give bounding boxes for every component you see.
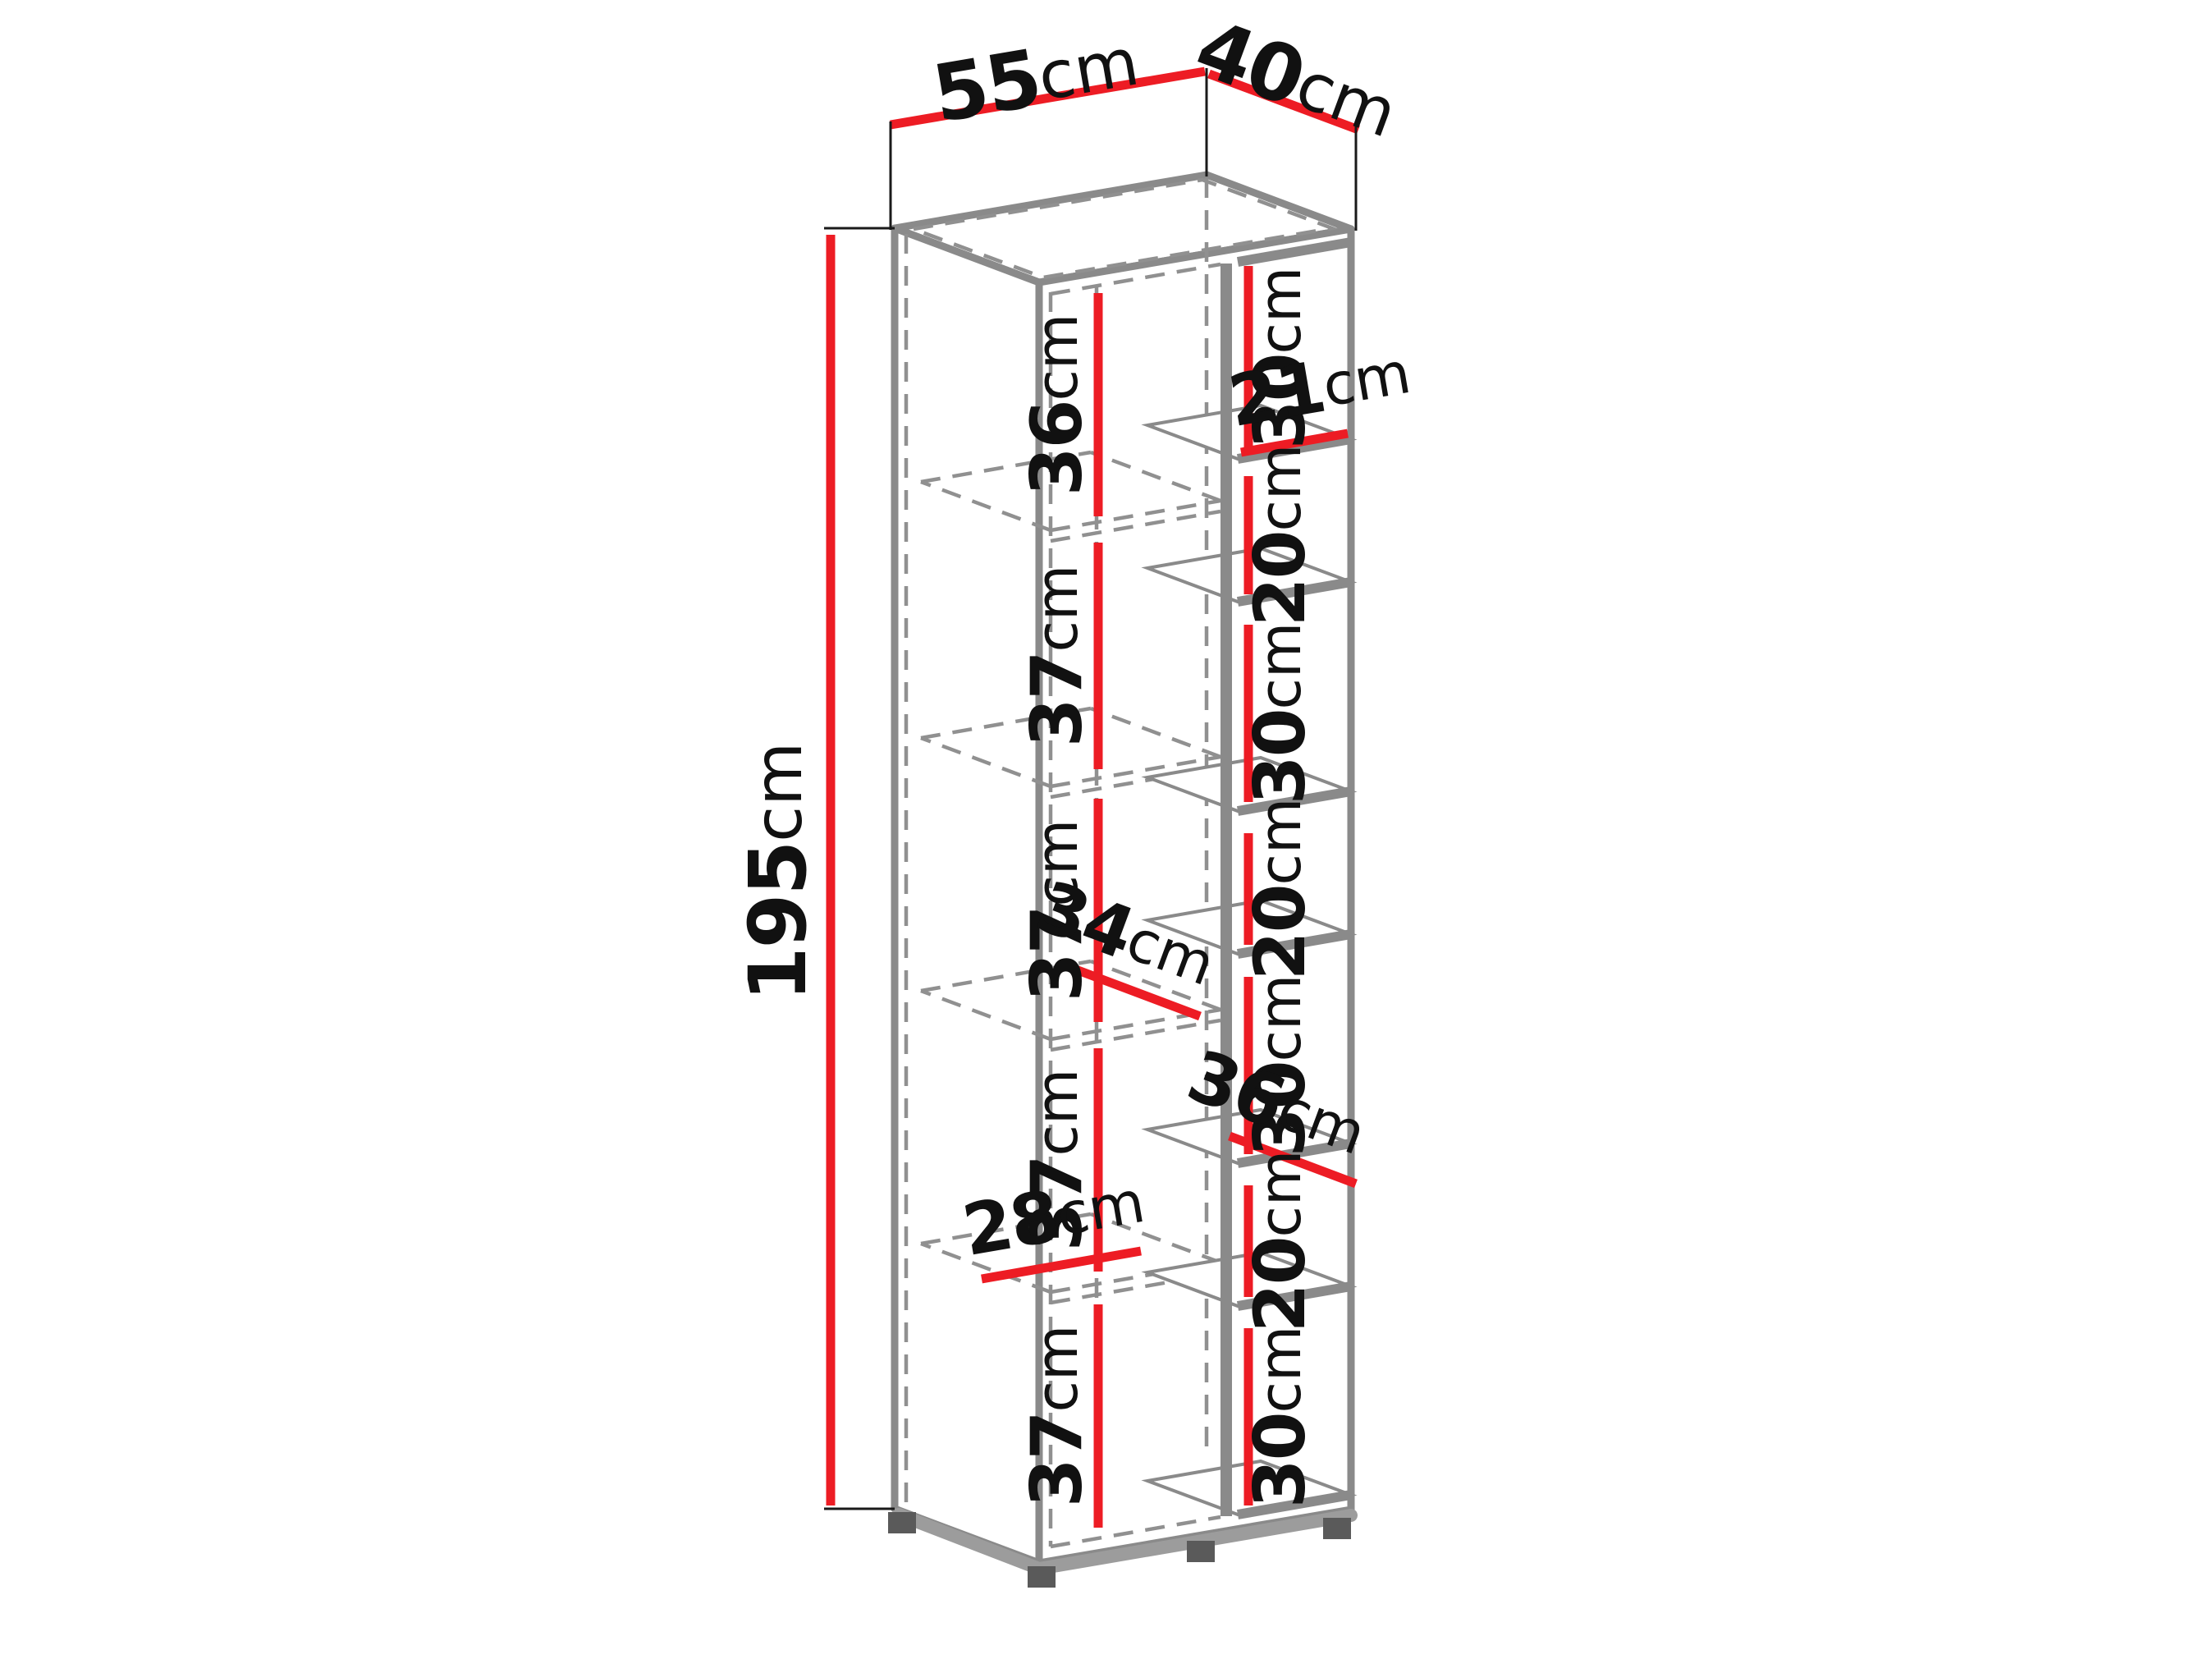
dim-label-wardrobe-compartment: 37cm: [1016, 565, 1098, 747]
dim-label-column-compartment: 20cm: [1239, 798, 1321, 980]
dim-label-width: 55cm: [927, 16, 1146, 141]
dim-label-wardrobe-compartment: 36cm: [1016, 314, 1098, 496]
dim-label-wardrobe-compartment: 37cm: [1016, 1325, 1098, 1507]
dim-label-height: 195cm: [732, 742, 824, 1001]
dim-label-column-compartment: 30cm: [1239, 1326, 1321, 1508]
dim-label-depth: 40cm: [1184, 2, 1410, 159]
dim-label-column-compartment: 20cm: [1239, 444, 1321, 626]
dim-label-column-compartment: 30cm: [1239, 622, 1321, 804]
cabinet-isometric-drawing: 55cm 40cm 195cm 36cm 37cm 37cm 37cm 37cm…: [0, 0, 2212, 1659]
dim-label-column-compartment: 20cm: [1239, 1150, 1321, 1332]
furniture-dimension-diagram: 55cm 40cm 195cm 36cm 37cm 37cm 37cm 37cm…: [0, 0, 2212, 1659]
